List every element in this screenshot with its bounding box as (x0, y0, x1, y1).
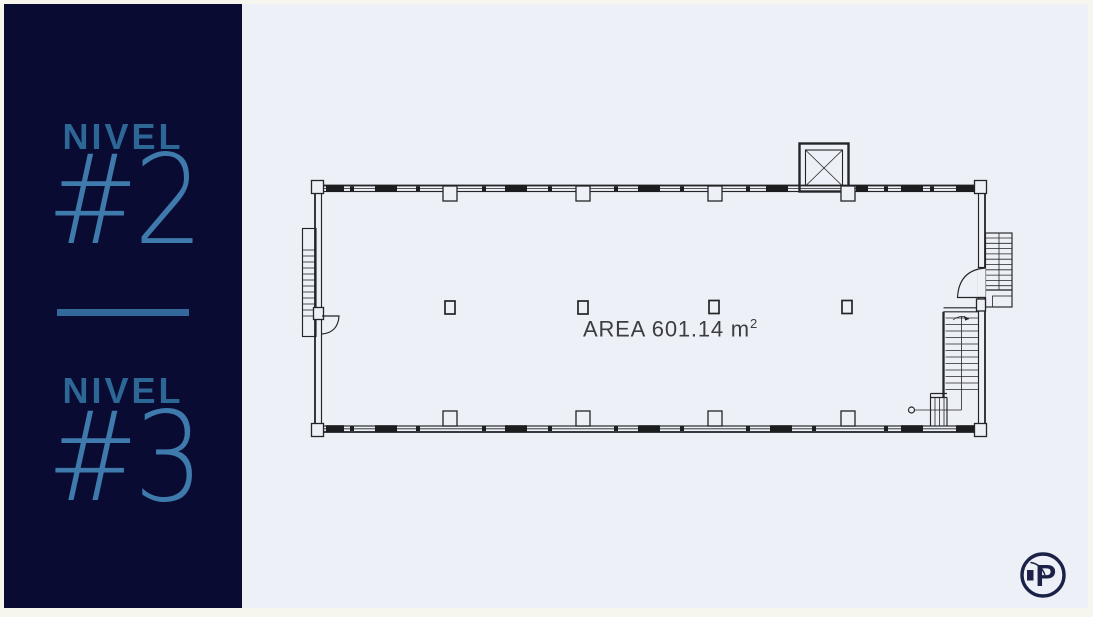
perimeter-walls (315, 186, 985, 433)
stair-left (303, 229, 324, 337)
stair-right (986, 233, 1013, 307)
interior-columns (445, 301, 852, 315)
logo-pipe-icon (1027, 570, 1034, 581)
wall-columns (443, 186, 855, 426)
door-right (958, 268, 987, 298)
area-label: AREA 601.14 m2 (583, 316, 758, 342)
area-text: AREA 601.14 m (583, 316, 750, 341)
area-superscript: 2 (750, 316, 758, 331)
logo-letter: P (1036, 558, 1057, 593)
corner-columns (312, 181, 987, 437)
company-logo: P (1018, 550, 1068, 600)
door-left (322, 316, 339, 334)
stair-interior (931, 299, 986, 426)
floor-plan (0, 0, 1093, 617)
